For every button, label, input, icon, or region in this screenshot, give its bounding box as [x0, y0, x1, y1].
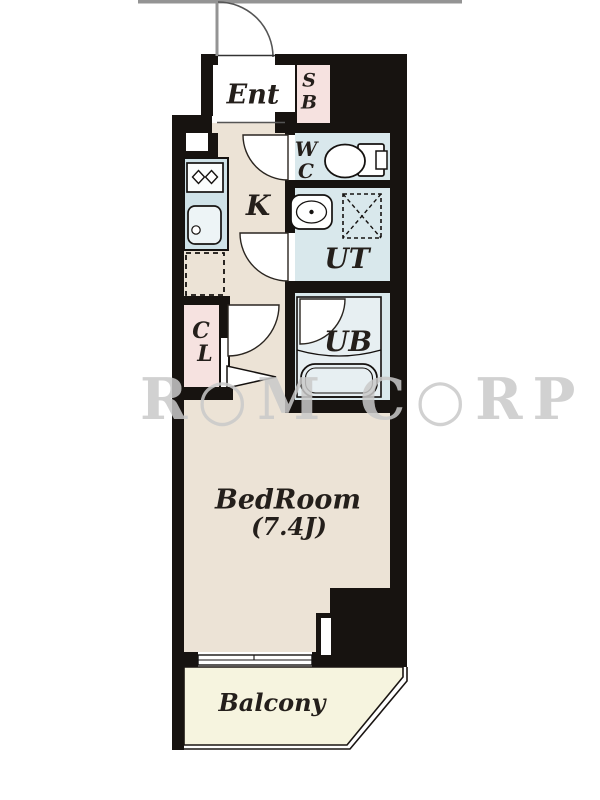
watermark-text: R○M C○RP [140, 366, 585, 433]
wall-ut-ub-divider [295, 281, 390, 293]
wall-top-left-stub [201, 54, 218, 65]
label-entrance: Ent [227, 82, 280, 109]
balcony-window [198, 655, 312, 665]
label-bedroom: BedRoom [215, 487, 361, 514]
pillar-slot [321, 618, 331, 655]
ut-door-opening [285, 233, 295, 281]
wc-door-opening [285, 135, 295, 180]
wall-left [172, 133, 184, 750]
label-unit-bath: UB [324, 328, 372, 356]
label-utility: UT [324, 245, 369, 273]
wall-right [390, 55, 407, 667]
label-shoe-box-line1: S [302, 72, 316, 91]
label-bedroom-size: (7.4J) [251, 515, 327, 539]
label-closet-line1: C [192, 320, 210, 342]
site-line [138, 0, 462, 56]
wall-closet-right [219, 296, 230, 337]
floor-plan-canvas: R○M C○RP Ent S B W C K UT C L UB BedRoom… [0, 0, 600, 800]
wall-sb-bottom [285, 123, 330, 133]
wall-balcony-left [172, 667, 184, 750]
front-door-arc [218, 2, 275, 57]
label-balcony: Balcony [219, 691, 326, 715]
wall-bedroom-bottom-left [184, 652, 198, 667]
meter-box-notch [186, 133, 208, 151]
pillar-notch-main [330, 588, 407, 667]
label-wc-line1: W [295, 139, 317, 159]
label-kitchen: K [246, 192, 270, 220]
wall-left-jog [172, 115, 212, 133]
label-wc-line2: C [298, 161, 314, 181]
label-closet-line2: L [197, 343, 212, 365]
label-shoe-box-line2: B [301, 94, 317, 113]
